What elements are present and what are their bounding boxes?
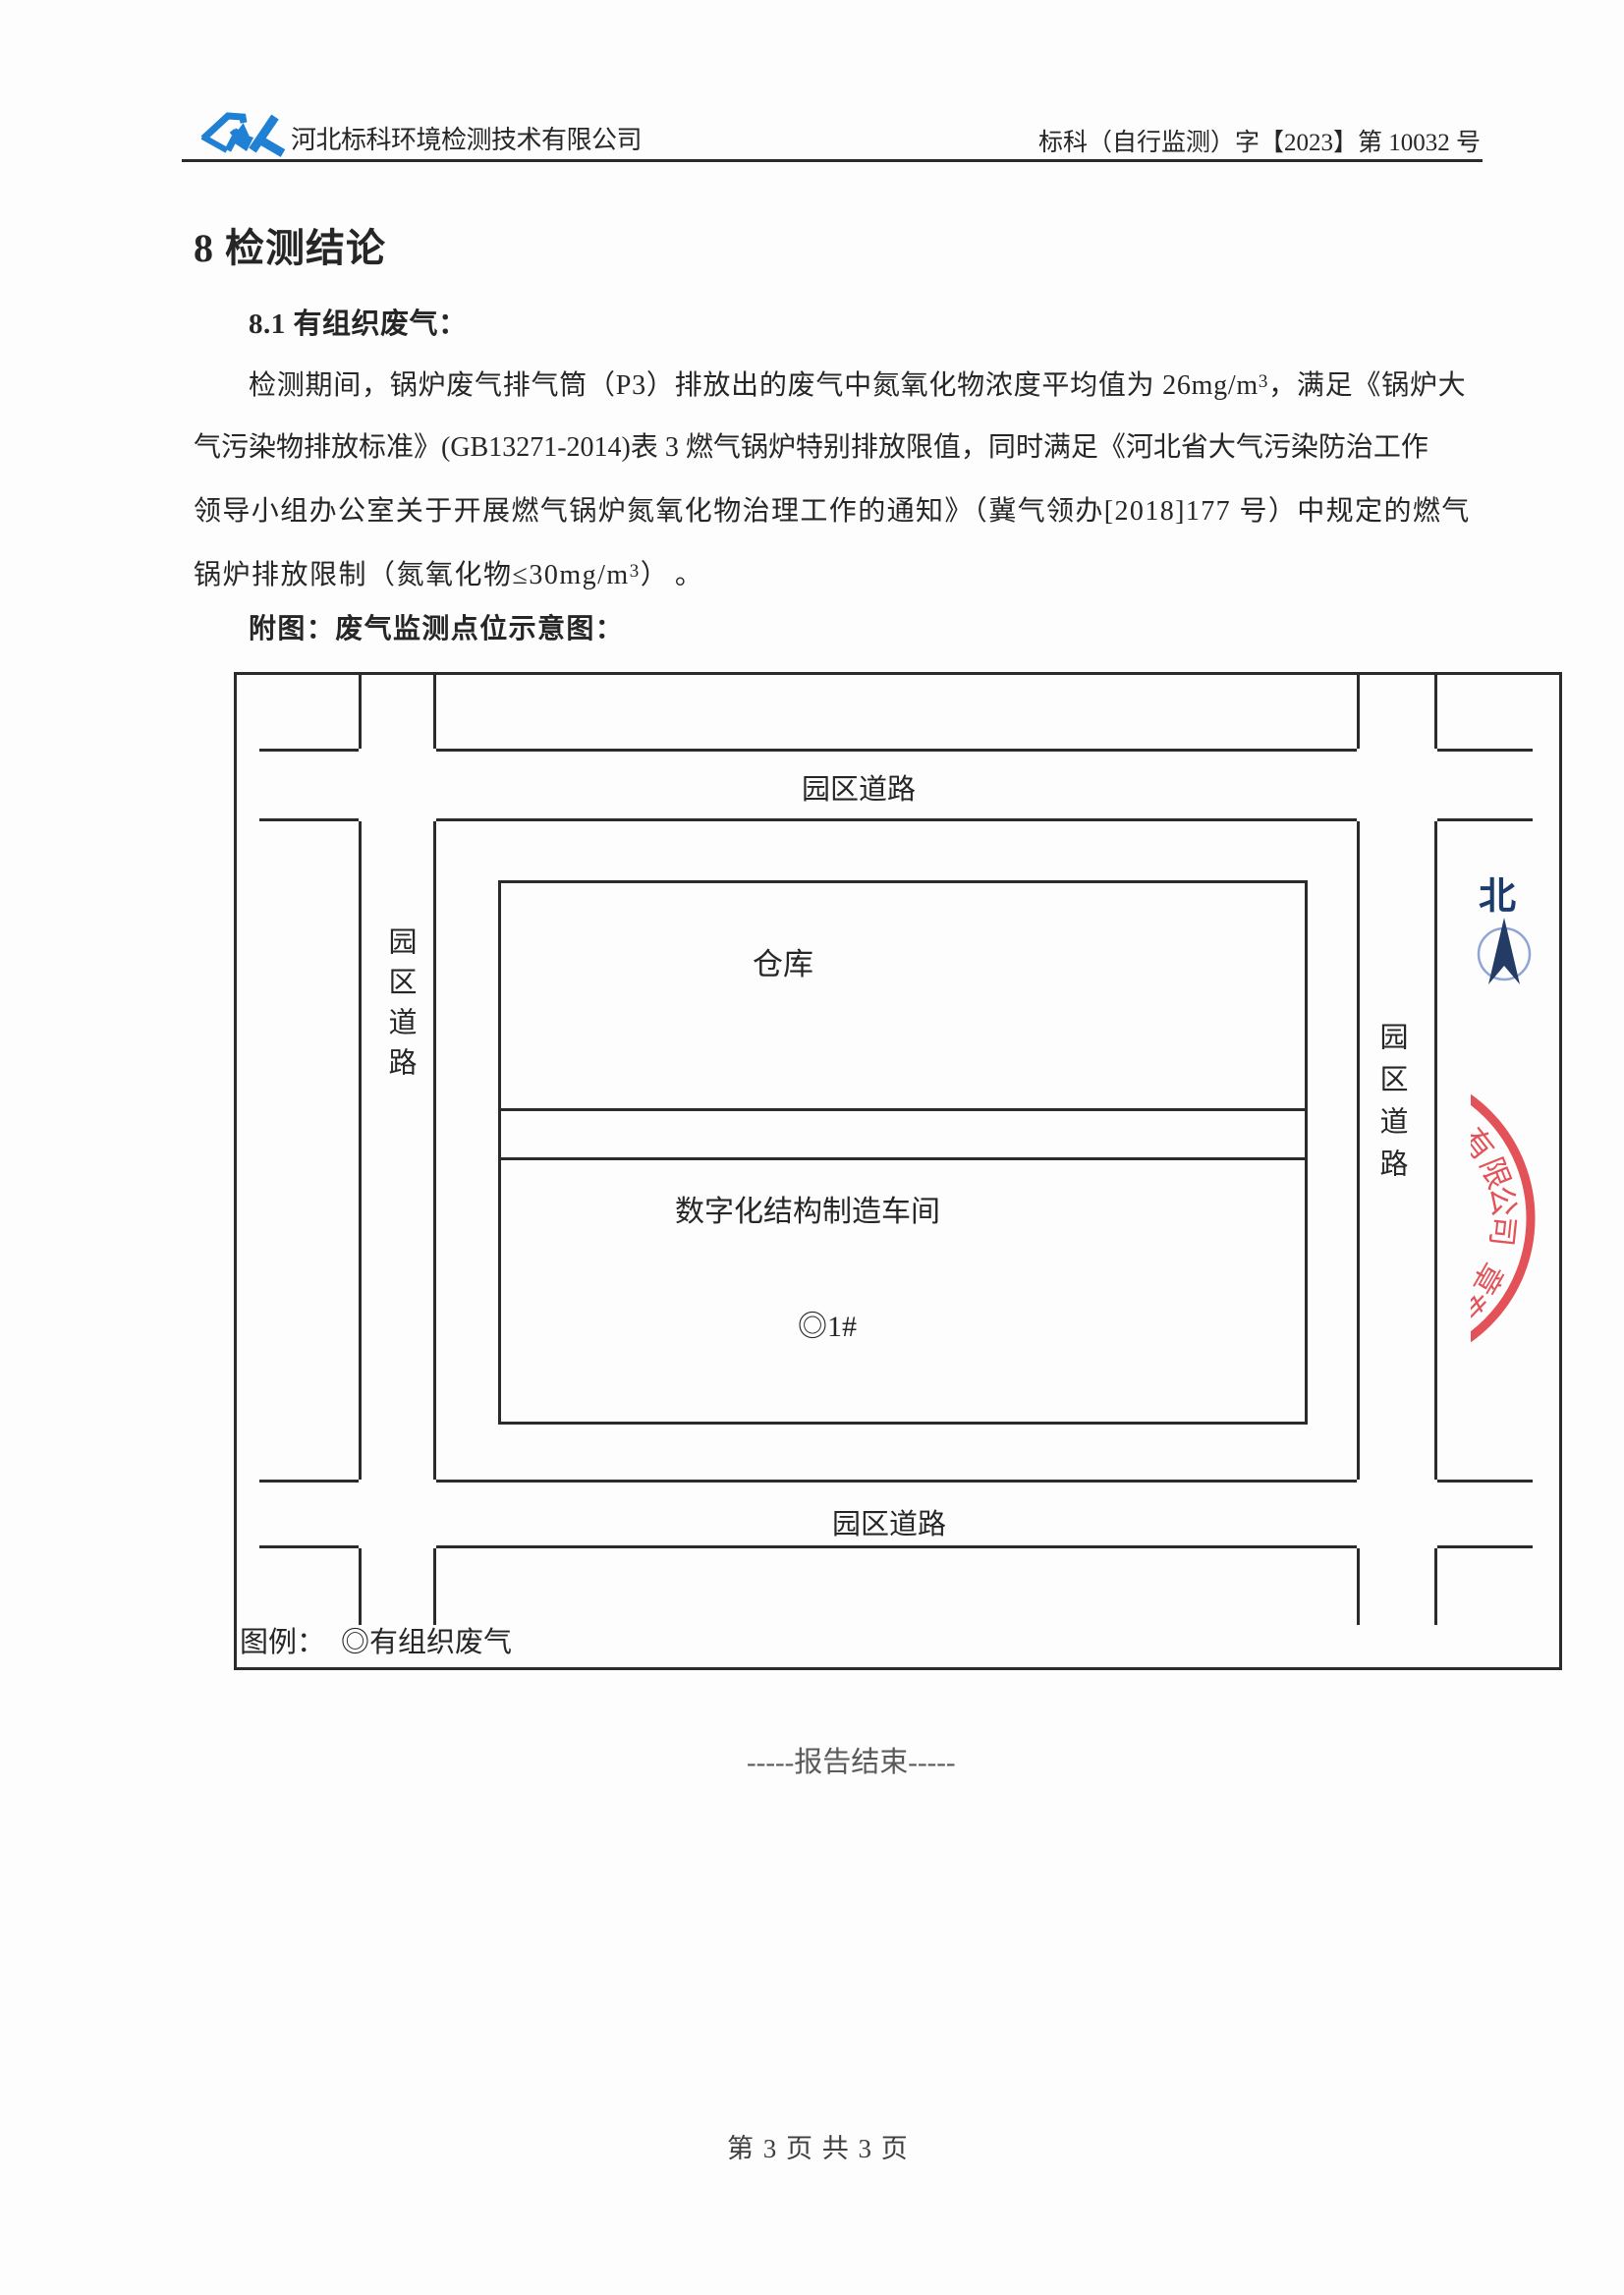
svg-text:司: 司 xyxy=(1484,1214,1521,1248)
svg-text:公: 公 xyxy=(1484,1184,1522,1219)
